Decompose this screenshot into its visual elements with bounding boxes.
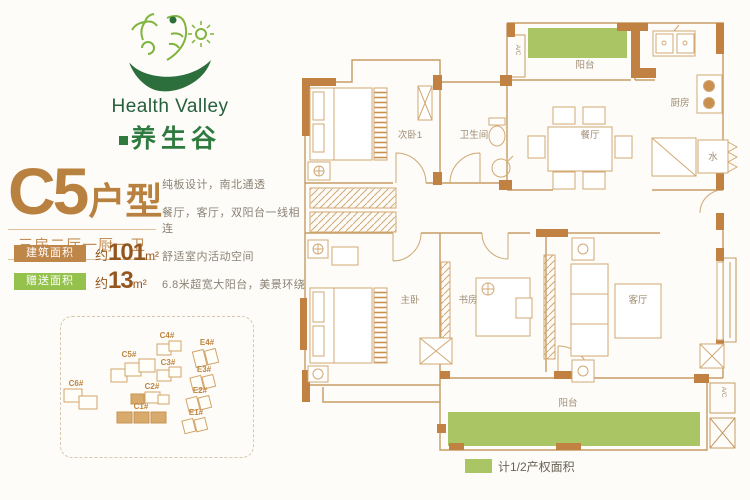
bedroom2-door: [396, 153, 426, 183]
gift-area-unit: m²: [133, 277, 147, 291]
bedroom2-bed: [310, 88, 387, 160]
logo-title: Health Valley: [90, 96, 250, 118]
kitchen-counter: [652, 138, 696, 176]
logo-graphic-icon: [115, 4, 225, 100]
building-label-c1: C1#: [134, 402, 149, 411]
building-e1: [182, 416, 208, 435]
unit-code: C5: [8, 154, 86, 228]
building-label-c3: C3#: [161, 358, 176, 367]
description-line: 6.8米超宽大阳台，美景环绕: [162, 276, 307, 292]
building-label-c6: C6#: [69, 379, 84, 388]
floor-plan: 阳台 厨房 餐厅 次卧1 卫生间 主卧 书房 客厅 阳台 水 A/C A/C 计…: [290, 0, 750, 500]
legend: 计1/2产权面积: [465, 459, 575, 474]
description: 纯板设计，南北通透 餐厅，客厅，双阳台一线相连 舒适室内活动空间 6.8米超宽大…: [162, 176, 307, 304]
room-label-study: 书房: [458, 294, 477, 306]
legend-label: 计1/2产权面积: [498, 460, 575, 474]
unit-type-suffix: 户型: [88, 181, 162, 222]
building-label-c4: C4#: [160, 331, 175, 340]
living-coffee-table: [615, 284, 661, 338]
bathroom-basin: [492, 156, 513, 177]
balcony-top-green-area: [528, 28, 627, 58]
room-label-master: 主卧: [400, 294, 420, 306]
building-label-c2: C2#: [145, 382, 160, 391]
logo-subtitle: 养生谷: [90, 119, 250, 155]
site-plan: C6# C5# C4# C3# C2# C1# E4# E3# E2# E1#: [60, 316, 254, 458]
master-bed: [310, 288, 387, 363]
building-c4: [157, 341, 181, 355]
hallway-wardrobe: [310, 188, 396, 232]
master-closet: [420, 262, 452, 364]
built-area-number: 101: [108, 239, 145, 266]
badge-row-gift-area: 赠送面积 约13m²: [14, 270, 159, 292]
wall-piers: [300, 23, 724, 450]
gift-area-badge: 赠送面积: [14, 273, 86, 290]
building-label-c5: C5#: [122, 350, 137, 359]
description-line: 餐厅，客厅，双阳台一线相连: [162, 204, 307, 236]
room-label-kitchen: 厨房: [670, 97, 689, 109]
master-door: [393, 233, 421, 261]
room-label-water: 水: [708, 151, 718, 163]
logo: Health Valley 养生谷: [90, 4, 250, 155]
room-label-balcony-bottom: 阳台: [558, 397, 577, 409]
building-label-e4: E4#: [200, 338, 215, 347]
room-label-balcony-top: 阳台: [575, 59, 594, 71]
built-area-badge: 建筑面积: [14, 245, 86, 262]
bedroom2-nightstand: [308, 162, 330, 180]
logo-seal-icon: [119, 136, 128, 145]
walls: [305, 23, 736, 450]
balcony-bottom-green-area: [448, 412, 700, 446]
building-c3: [157, 367, 181, 381]
ac-label-top: A/C: [514, 45, 521, 56]
room-label-bathroom: 卫生间: [460, 129, 489, 141]
room-label-dining: 餐厅: [580, 129, 600, 141]
gift-area-prefix: 约: [95, 276, 108, 291]
dining-table-set: [528, 107, 632, 189]
room-label-living: 客厅: [628, 294, 648, 306]
building-c1: [117, 412, 166, 423]
study-door: [482, 233, 508, 259]
logo-cn-text: 养生谷: [131, 125, 221, 153]
building-label-e1: E1#: [189, 408, 204, 417]
built-area-value: 约101m²: [95, 239, 159, 267]
description-line: 舒适室内活动空间: [162, 248, 307, 264]
description-line: 纯板设计，南北通透: [162, 176, 307, 192]
building-c6: [64, 389, 97, 409]
gift-area-number: 13: [108, 267, 133, 294]
kitchen-stove: [697, 75, 722, 113]
living-plant: [700, 344, 724, 368]
building-label-e2: E2#: [193, 386, 208, 395]
built-area-unit: m²: [145, 249, 159, 263]
room-label-bedroom2: 次卧1: [398, 129, 422, 141]
entry-door: [700, 190, 723, 213]
built-area-prefix: 约: [95, 248, 108, 263]
study-desk: [476, 278, 532, 336]
area-badges: 建筑面积 约101m² 赠送面积 约13m²: [14, 242, 159, 298]
unit-title: C5户型: [8, 158, 160, 224]
building-c5: [111, 359, 155, 382]
bedroom2-shaft: [418, 86, 432, 120]
flyer: Health Valley 养生谷 C5户型 三房二厅一厨一卫 建筑面积 约10…: [0, 0, 750, 500]
bathroom-toilet: [489, 118, 505, 146]
ac-label-bottom: A/C: [720, 387, 727, 398]
bathroom-door: [450, 153, 480, 183]
site-plan-map: C6# C5# C4# C3# C2# C1# E4# E3# E2# E1#: [61, 317, 252, 456]
living-sofa: [571, 238, 608, 382]
gift-area-value: 约13m²: [95, 267, 147, 295]
legend-swatch: [465, 459, 492, 473]
badge-row-built-area: 建筑面积 约101m²: [14, 242, 159, 264]
building-label-e3: E3#: [197, 365, 212, 374]
kitchen-sink: [653, 25, 695, 56]
